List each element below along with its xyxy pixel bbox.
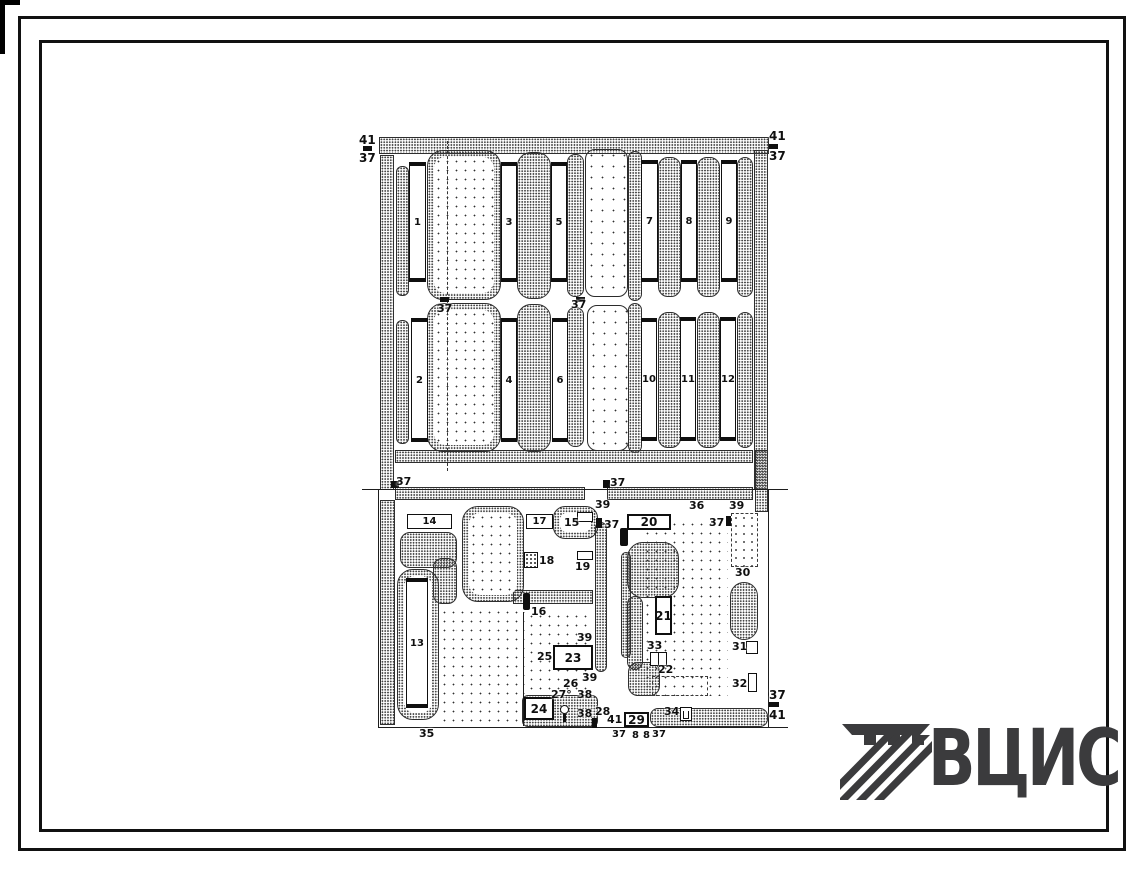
stipple-area-dense [658, 312, 681, 448]
building-6: 6 [552, 318, 568, 442]
stipple-area-dense [396, 166, 409, 296]
stipple-area-dense [595, 522, 607, 672]
logo-emblem-icon [840, 722, 932, 802]
building-endcap [411, 318, 428, 322]
building-endcap [411, 438, 428, 442]
plan-label-39: 39 [595, 499, 610, 510]
building-9: 9 [721, 160, 737, 282]
plan-label-16: 16 [531, 606, 546, 617]
building-endcap [552, 318, 568, 322]
plan-label-39: 39 [577, 632, 592, 643]
stipple-area-dense [380, 155, 394, 490]
publisher-logo: ВЦИС [840, 716, 1088, 804]
box-mark [748, 673, 757, 692]
tick-mark [592, 718, 597, 728]
blob-core [469, 513, 517, 595]
plan-label-31: 31 [732, 641, 747, 652]
building-12: 12 [720, 317, 736, 441]
plan-label-37: 37 [359, 152, 376, 164]
stipple-area-dense [737, 157, 753, 297]
plan-label-8: 8 [643, 731, 650, 741]
building-endcap [501, 318, 517, 322]
building-14: 14 [407, 514, 452, 529]
logo-text: ВЦИС [928, 720, 1119, 798]
box-mark [577, 551, 593, 560]
plan-label-37: 37 [396, 476, 411, 487]
plan-label-35: 35 [419, 728, 434, 739]
building-endcap [501, 278, 517, 282]
plan-label-19: 19 [575, 561, 590, 572]
building-23: 23 [553, 645, 593, 670]
stipple-area-sparse [440, 608, 525, 725]
building-endcap [680, 437, 696, 441]
building-endcap [681, 160, 697, 164]
building-endcap [721, 278, 737, 282]
scanned-sheet: 1357892461011121321141720232429413741373… [0, 0, 1139, 869]
stipple-area-blob [462, 506, 524, 602]
stipple-area-dense [627, 542, 679, 598]
building-endcap [681, 278, 697, 282]
plan-label-41: 41 [607, 714, 622, 725]
lamp-bulb [560, 705, 569, 714]
plan-label-25: 25 [537, 651, 552, 662]
tick-mark [769, 702, 779, 707]
building-endcap [641, 318, 657, 322]
plan-label-18: 18 [539, 555, 554, 566]
building-4: 4 [501, 318, 517, 442]
stipple-area-dense [567, 154, 584, 297]
plan-label-37: 37 [769, 689, 786, 701]
plan-label-36: 36 [689, 500, 704, 511]
stipple-area-dense [567, 307, 584, 447]
tick-mark [603, 480, 610, 488]
building-endcap [641, 160, 658, 164]
building-8: 8 [681, 160, 697, 282]
building-10: 10 [641, 318, 657, 441]
plan-label-37: 37 [604, 519, 619, 530]
tub-mark [680, 707, 692, 721]
plan-label-15: 15 [564, 517, 579, 528]
stipple-area-dense [380, 500, 395, 725]
building-endcap [551, 278, 567, 282]
plan-label-37: 37 [652, 730, 666, 740]
building-24: 24 [524, 697, 554, 720]
building-7: 7 [641, 160, 658, 282]
stipple-area-blob [427, 303, 501, 452]
stipple-area-blob [427, 150, 501, 300]
building-17: 17 [526, 514, 553, 529]
building-endcap [680, 317, 696, 321]
blob-core [434, 310, 494, 445]
stipple-area-dense [627, 596, 643, 670]
plan-label-22: 22 [658, 664, 673, 675]
building-29: 29 [624, 712, 649, 727]
plan-line [362, 489, 788, 490]
stipple-area-court [587, 305, 629, 451]
building-3: 3 [501, 162, 517, 282]
building-21: 21 [655, 596, 672, 635]
box-mark [577, 512, 593, 522]
stipple-area-dense [517, 152, 551, 299]
plan-label-37: 37 [769, 150, 786, 162]
building-endcap [501, 438, 517, 442]
plan-label-34: 34 [664, 706, 679, 717]
orchard-mark [731, 513, 758, 567]
stipple-area-dense [697, 312, 720, 448]
box-mark [746, 641, 758, 654]
plan-label-41: 41 [769, 130, 786, 142]
tub-inner [683, 711, 689, 719]
plan-label-41: 41 [359, 134, 376, 146]
plan-label-8: 8 [632, 731, 639, 741]
dashbox-mark [652, 676, 708, 696]
stipple-area-dense [628, 151, 642, 301]
plan-label-33: 33 [647, 640, 662, 651]
stipple-area-dense [697, 157, 720, 297]
building-11: 11 [680, 317, 696, 441]
building-endcap [551, 162, 567, 166]
stipple-area-dense [658, 157, 681, 297]
plan-label-27°: 27° [551, 689, 572, 700]
plan-label-37: 37 [709, 517, 724, 528]
stipple-area-court [585, 149, 628, 297]
tick-mark [596, 518, 602, 528]
plan-label-32: 32 [732, 678, 747, 689]
building-20: 20 [627, 514, 671, 530]
plan-label-37: 37 [437, 303, 452, 314]
building-5: 5 [551, 162, 567, 282]
plan-label-38: 38 [577, 689, 592, 700]
plan-label-41: 41 [769, 709, 786, 721]
plan-label-39: 39 [582, 672, 597, 683]
building-endcap [721, 160, 737, 164]
plan-label-39: 39 [729, 500, 744, 511]
building-endcap [406, 578, 428, 582]
building-endcap [720, 437, 736, 441]
building-endcap [720, 317, 736, 321]
stipple-area-dense [730, 582, 758, 640]
building-13: 13 [406, 578, 428, 708]
plan-label-37: 37 [571, 299, 586, 310]
building-endcap [409, 162, 426, 166]
plan-label-37: 37 [612, 730, 626, 740]
building-endcap [552, 438, 568, 442]
stipple-area-dense [396, 320, 409, 444]
stipple-area-dense [755, 450, 768, 512]
plan-label-37: 37 [610, 477, 625, 488]
stipple-area-dense [628, 303, 642, 453]
plan-line [378, 727, 788, 728]
plan-label-38: 38 [577, 708, 592, 719]
building-2: 2 [411, 318, 428, 442]
building-endcap [409, 278, 426, 282]
building-endcap [501, 162, 517, 166]
blob-core [434, 157, 494, 293]
lamp-mark [559, 705, 569, 722]
plan-line [378, 489, 379, 727]
stipple-area-dense [737, 312, 753, 448]
bar-mark [620, 528, 628, 546]
stipple-area-dense [517, 304, 551, 452]
building-endcap [641, 278, 658, 282]
building-1: 1 [409, 162, 426, 282]
stipple-area-dense [754, 150, 768, 490]
building-endcap [406, 704, 428, 708]
plan-label-30: 30 [735, 567, 750, 578]
building-endcap [641, 437, 657, 441]
lamp-stem [563, 714, 566, 722]
hatch-mark [524, 552, 538, 568]
bar-mark [523, 593, 530, 610]
